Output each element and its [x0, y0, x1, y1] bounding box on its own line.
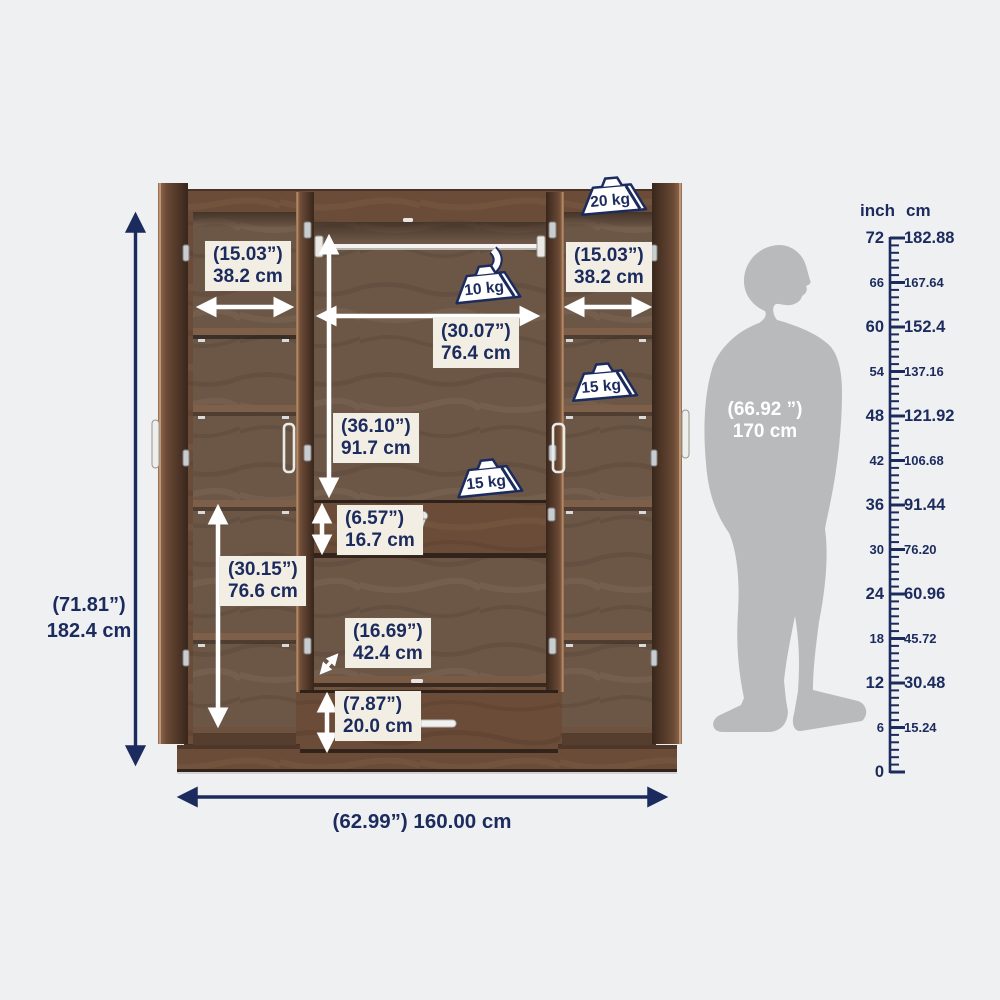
dim-total-height: (71.81”)182.4 cm	[43, 592, 135, 644]
dim-middle-height: (36.10”)91.7 cm	[333, 413, 419, 463]
ruler-inch-48: 48	[840, 405, 884, 427]
dim-left-shelf-width: (15.03”)38.2 cm	[205, 241, 291, 291]
ruler-inch-42: 42	[840, 450, 884, 472]
ruler-cm-18: 45.72	[904, 628, 937, 650]
middle-right-door	[546, 192, 564, 692]
dim-middle-drawer-height: (6.57”)16.7 cm	[337, 505, 423, 555]
door-lock-icon	[548, 508, 555, 521]
dim-depth: (16.69”)42.4 cm	[345, 618, 431, 668]
right-outer-door	[651, 183, 689, 744]
door-catch	[403, 218, 413, 222]
ruler-cm-60: 152.4	[904, 316, 945, 338]
ruler-inch-66: 66	[840, 272, 884, 294]
ruler-cm-42: 106.68	[904, 450, 944, 472]
ruler-inch-54: 54	[840, 361, 884, 383]
ruler-cm-24: 60.96	[904, 583, 945, 605]
product-dimension-diagram: 20 kg 10 kg 15 kg 15 kg (15.03”)38.2 cm …	[0, 0, 1000, 1000]
door-catch	[411, 679, 423, 683]
dim-middle-width: (30.07”)76.4 cm	[433, 318, 519, 368]
ruler-inch-0: 0	[840, 761, 884, 783]
left-door-handle	[152, 420, 159, 468]
ruler-cm-12: 30.48	[904, 672, 945, 694]
ruler-inch-36: 36	[840, 494, 884, 516]
ruler-inch-12: 12	[840, 672, 884, 694]
ruler-ticks	[890, 238, 905, 772]
right-door-handle	[682, 410, 689, 458]
ruler-inch-24: 24	[840, 583, 884, 605]
ruler-unit-inch: inch	[845, 200, 895, 222]
weight-tag-15kg-right-label: 15 kg	[581, 377, 622, 397]
ruler-unit-cm: cm	[906, 200, 931, 222]
dim-right-shelf-width: (15.03”)38.2 cm	[566, 242, 652, 292]
ruler-inch-30: 30	[840, 539, 884, 561]
left-outer-door	[152, 183, 189, 744]
ruler-cm-54: 137.16	[904, 361, 944, 383]
ruler-inch-72: 72	[840, 227, 884, 249]
ruler-cm-36: 91.44	[904, 494, 945, 516]
ruler-cm-48: 121.92	[904, 405, 954, 427]
ruler-scale	[890, 237, 905, 773]
weight-tag-20kg-label: 20 kg	[590, 191, 631, 211]
ruler-inch-60: 60	[840, 316, 884, 338]
ruler-inch-6: 6	[840, 717, 884, 739]
dim-left-lower-height: (30.15”)76.6 cm	[220, 556, 306, 606]
ruler-inch-18: 18	[840, 628, 884, 650]
ruler-cm-30: 76.20	[904, 539, 937, 561]
ruler-cm-6: 15.24	[904, 717, 937, 739]
dim-person-height: (66.92 ”)170 cm	[713, 399, 817, 443]
dim-bottom-drawer-height: (7.87”)20.0 cm	[335, 691, 421, 741]
dim-total-width: (62.99”) 160.00 cm	[281, 810, 563, 834]
ruler-cm-72: 182.88	[904, 227, 954, 249]
weight-tag-20kg: 20 kg	[579, 175, 646, 214]
ruler-cm-66: 167.64	[904, 272, 944, 294]
